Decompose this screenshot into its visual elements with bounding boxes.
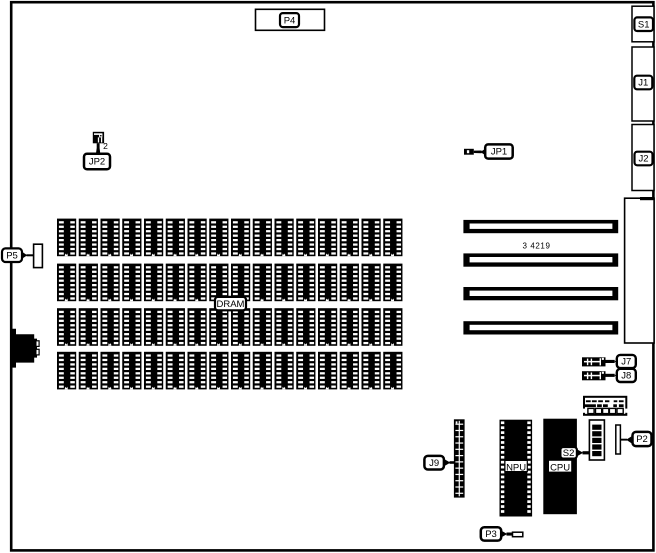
svg-text:DRAM: DRAM [217, 299, 245, 310]
svg-text:P2: P2 [636, 434, 648, 445]
svg-text:S1: S1 [638, 19, 650, 30]
svg-text:2: 2 [103, 141, 108, 151]
svg-text:JP1: JP1 [491, 147, 507, 158]
svg-text:CPU: CPU [550, 463, 570, 474]
svg-text:P4: P4 [284, 15, 296, 26]
svg-text:3 4219: 3 4219 [522, 241, 550, 250]
svg-text:NPU: NPU [506, 462, 526, 473]
svg-text:J9: J9 [429, 458, 439, 469]
svg-text:J7: J7 [621, 357, 631, 368]
svg-text:S2: S2 [563, 448, 575, 459]
svg-text:J1: J1 [638, 78, 648, 89]
svg-text:P3: P3 [485, 529, 497, 540]
svg-text:P5: P5 [6, 250, 18, 261]
svg-text:J8: J8 [621, 371, 631, 382]
svg-text:JP2: JP2 [89, 157, 105, 168]
svg-text:J2: J2 [638, 154, 648, 165]
